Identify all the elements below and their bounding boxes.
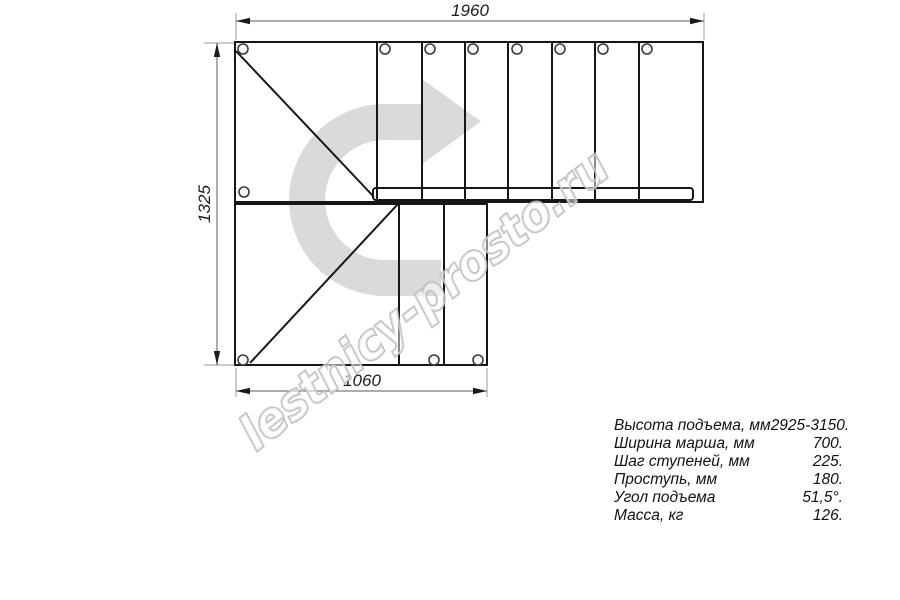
spec-value: 51,5°. <box>802 489 843 507</box>
spec-row-mass: Масса, кг 126. <box>614 507 843 525</box>
spec-label: Угол подъема <box>614 489 715 507</box>
dim-arrow-icon <box>690 18 704 24</box>
hole-icon <box>555 44 565 54</box>
hole-icon <box>598 44 608 54</box>
spec-label: Ширина марша, мм <box>614 435 755 453</box>
dim-arrow-icon <box>473 388 487 394</box>
hole-icon <box>642 44 652 54</box>
spec-row-step-pitch: Шаг ступеней, мм 225. <box>614 453 843 471</box>
screenshot-canvas: 1960 1325 1060 lestnicy-prosto.ru Высота… <box>0 0 900 600</box>
spec-label: Шаг ступеней, мм <box>614 453 750 471</box>
hole-icon <box>239 187 249 197</box>
hole-icon <box>429 355 439 365</box>
hole-icon <box>238 355 248 365</box>
spec-label: Проступь, мм <box>614 471 717 489</box>
specifications-table: Высота подъема, мм 2925-3150. Ширина мар… <box>614 417 843 524</box>
hole-icon <box>512 44 522 54</box>
dimension-left-value: 1325 <box>195 185 214 223</box>
dim-arrow-icon <box>236 18 250 24</box>
spec-row-angle: Угол подъема 51,5°. <box>614 489 843 507</box>
dim-arrow-icon <box>214 43 220 57</box>
spec-value: 126. <box>813 507 843 525</box>
dimension-top-value: 1960 <box>451 1 489 20</box>
spec-value: 2925-3150. <box>771 417 849 435</box>
dimension-left: 1325 <box>195 43 234 365</box>
hole-icon <box>425 44 435 54</box>
spec-value: 225. <box>813 453 843 471</box>
spec-value: 180. <box>813 471 843 489</box>
dimension-top: 1960 <box>236 1 704 40</box>
hole-icon <box>468 44 478 54</box>
hole-icon <box>473 355 483 365</box>
spec-row-tread: Проступь, мм 180. <box>614 471 843 489</box>
dim-arrow-icon <box>236 388 250 394</box>
spec-label: Высота подъема, мм <box>614 417 771 435</box>
hole-icon <box>380 44 390 54</box>
spec-value: 700. <box>813 435 843 453</box>
spec-row-march-width: Ширина марша, мм 700. <box>614 435 843 453</box>
spec-label: Масса, кг <box>614 507 683 525</box>
dim-arrow-icon <box>214 351 220 365</box>
hole-icon <box>238 44 248 54</box>
spec-row-height: Высота подъема, мм 2925-3150. <box>614 417 843 435</box>
